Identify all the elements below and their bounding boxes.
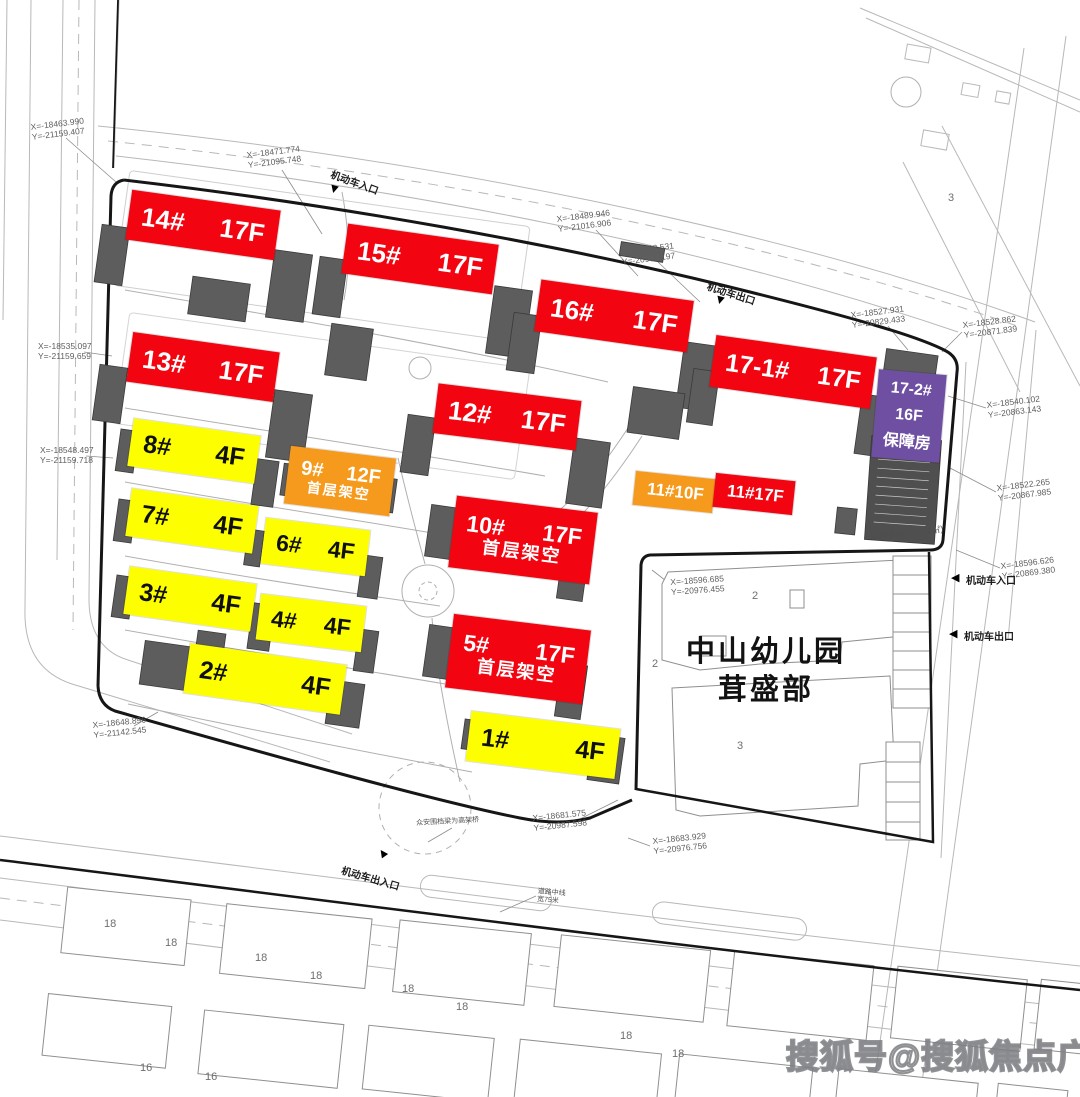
- entrance-arrow-icon: ▼: [713, 292, 729, 308]
- building-label-12: 12#17F: [432, 383, 581, 450]
- neighbor-building-number: 16: [205, 1071, 217, 1083]
- building-number: 6#: [275, 530, 303, 558]
- floors-label: 10F: [673, 483, 704, 504]
- building-line: 保障房: [882, 432, 931, 453]
- building-row: 4#4F: [257, 604, 365, 642]
- building-row: 2#4F: [185, 655, 345, 704]
- building-row: 12#17F: [434, 394, 580, 439]
- floors-label: 17F: [217, 355, 265, 389]
- building-label-6: 6#4F: [261, 518, 371, 576]
- building-number: 3#: [138, 579, 169, 610]
- building-number: 16#: [549, 293, 596, 327]
- building-row: 3#4F: [125, 577, 256, 622]
- building-number: 14#: [140, 202, 187, 236]
- entrance-arrow-icon: ◀: [951, 573, 959, 584]
- coordinate-label: X=-18548.497Y=-21159.718: [40, 445, 94, 465]
- building-row: 17-1#17F: [711, 347, 875, 396]
- coordinate-label: X=-18535.097Y=-21159.659: [38, 341, 92, 361]
- floors-label: 4F: [300, 671, 333, 702]
- entrance-arrow-icon: ▲: [373, 843, 391, 861]
- building-number: 5#: [462, 630, 490, 658]
- building-number: 1#: [480, 724, 511, 754]
- floors-label: 17F: [436, 248, 484, 282]
- building-row: 11#10F: [633, 479, 714, 506]
- building-label-11b: 11#17F: [712, 473, 795, 515]
- building-row: 7#4F: [127, 499, 258, 544]
- building-label-13: 13#17F: [126, 332, 280, 402]
- building-line: 17-2#: [890, 379, 932, 400]
- neighbor-building-number: 18: [456, 1001, 468, 1013]
- kindergarten-name: 中山幼儿园: [644, 634, 888, 672]
- building-number: 17-1#: [724, 349, 791, 385]
- building-label-9: 9#12F首层架空: [284, 446, 396, 516]
- building-number: 11#: [726, 482, 755, 503]
- building-label-17-2: 17-2#16F保障房: [871, 369, 946, 463]
- neighbor-building-number: 18: [672, 1048, 684, 1060]
- building-row: 8#4F: [129, 429, 260, 474]
- neighbor-building-number: 16: [140, 1062, 152, 1074]
- coordinate-label: X=-18681.575Y=-20987.598: [532, 807, 587, 833]
- coordinate-label: X=-18648.896Y=-21142.545: [92, 714, 147, 740]
- coordinate-label: X=-18522.265Y=-20867.985: [996, 476, 1052, 502]
- area-label: 公共空间（1500㎡）: [870, 524, 949, 541]
- entrance-label: 机动车入口: [966, 572, 1016, 587]
- coordinate-label: X=-18540.102Y=-20863.143: [986, 393, 1042, 419]
- coordinate-label: X=-18683.929Y=-20976.756: [652, 830, 707, 856]
- floors-label: 4F: [214, 441, 247, 472]
- floors-label: 4F: [210, 589, 243, 620]
- neighbor-building-number: 18: [255, 952, 267, 964]
- kindergarten-branch: 茸盛部: [644, 672, 888, 710]
- coordinate-label: X=-18508.531Y=-20963.197: [620, 240, 676, 266]
- building-row: 11#17F: [713, 481, 794, 508]
- floors-label: 4F: [327, 536, 357, 564]
- building-number: 13#: [141, 345, 188, 379]
- neighbor-building-number: 18: [104, 918, 116, 930]
- building-label-17-1: 17-1#17F: [709, 335, 877, 409]
- building-number: 7#: [140, 501, 171, 532]
- building-number: 9#: [300, 458, 325, 482]
- building-label-3: 3#4F: [123, 566, 256, 631]
- building-label-5: 5#17F首层架空: [445, 614, 591, 704]
- building-row: 13#17F: [128, 343, 278, 391]
- entrance-arrow-icon: ◀: [949, 629, 957, 640]
- building-row: 1#4F: [467, 722, 619, 767]
- building-number: 11#: [646, 480, 675, 501]
- building-label-16: 16#17F: [534, 280, 694, 353]
- floors-label: 17F: [218, 213, 266, 247]
- building-label-15: 15#17F: [341, 224, 498, 295]
- floors-label: 17F: [519, 405, 567, 438]
- coordinate-label: X=-18471.774Y=-21095.748: [246, 143, 302, 169]
- coordinate-label: X=-18489.946Y=-21016.906: [556, 207, 612, 233]
- neighbor-building-number: 3: [948, 192, 954, 204]
- floors-label: 4F: [212, 511, 245, 542]
- entrance-arrow-icon: ▼: [327, 181, 343, 197]
- floors-label: 4F: [574, 736, 606, 766]
- building-label-14: 14#17F: [125, 190, 280, 260]
- neighbor-building-number: 18: [620, 1030, 632, 1042]
- entrance-label: 机动车出入口: [340, 862, 402, 893]
- coordinate-label: X=-18528.862Y=-20871.839: [962, 313, 1018, 339]
- kindergarten-label: 中山幼儿园 茸盛部: [644, 634, 888, 709]
- building-label-2: 2#4F: [183, 643, 346, 715]
- building-label-4: 4#4F: [256, 594, 367, 653]
- building-number: 12#: [447, 396, 493, 429]
- building-row: 16#17F: [536, 291, 692, 340]
- building-label-10: 10#17F首层架空: [448, 496, 598, 585]
- building-number: 2#: [198, 656, 229, 687]
- entrance-label: 机动车出口: [964, 628, 1014, 643]
- floors-label: 17F: [816, 362, 862, 395]
- neighbor-building-number: 2: [752, 590, 758, 602]
- coordinate-label: X=-18596.685Y=-20976.455: [670, 573, 725, 597]
- labels-layer: 14#17F15#17F16#17F17-1#17F17-2#16F保障房13#…: [0, 0, 1080, 1097]
- building-label-1: 1#4F: [466, 711, 621, 779]
- building-label-8: 8#4F: [127, 418, 260, 483]
- area-label: 众安围档梁为高架桥: [416, 817, 479, 829]
- floors-label: 4F: [323, 612, 353, 640]
- building-label-7: 7#4F: [125, 488, 258, 553]
- coordinate-label: X=-18463.990Y=-21159.407: [30, 115, 86, 141]
- neighbor-building-number: 18: [310, 970, 322, 982]
- building-row: 6#4F: [262, 528, 369, 565]
- neighbor-building-number: 18: [165, 937, 177, 949]
- area-label: 道路中线宽75米: [537, 888, 566, 907]
- floors-label: 17F: [753, 485, 784, 506]
- building-number: 8#: [142, 431, 173, 462]
- building-number: 15#: [356, 236, 403, 270]
- coordinate-label: X=-18527.931Y=-20829.433: [850, 303, 906, 329]
- building-number: 4#: [270, 606, 298, 634]
- building-label-11a: 11#10F: [632, 471, 715, 513]
- neighbor-building-number: 18: [402, 983, 414, 995]
- building-row: 15#17F: [343, 235, 497, 284]
- watermark: 搜狐号@搜狐焦点广安站: [786, 1030, 1080, 1078]
- site-plan-canvas: 14#17F15#17F16#17F17-1#17F17-2#16F保障房13#…: [0, 0, 1080, 1097]
- floors-label: 17F: [631, 305, 679, 339]
- neighbor-building-number: 3: [737, 740, 743, 752]
- building-line: 16F: [895, 406, 924, 426]
- building-row: 14#17F: [127, 201, 279, 250]
